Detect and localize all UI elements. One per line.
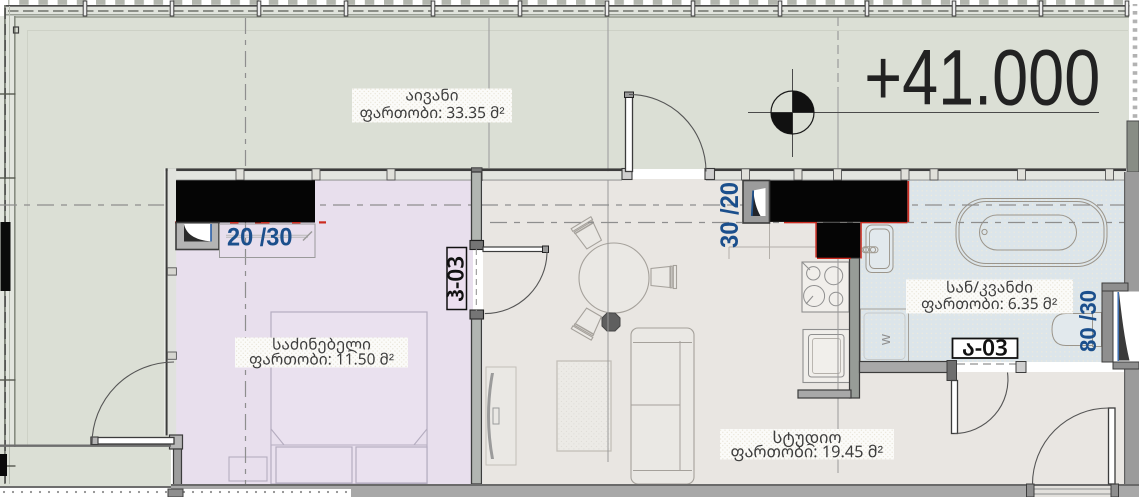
svg-text:+41.000: +41.000 [864,35,1100,122]
svg-text:w: w [877,334,894,346]
svg-text:80 /30: 80 /30 [1075,290,1101,352]
svg-text:30 /20: 30 /20 [716,182,744,248]
svg-text:20 /30: 20 /30 [227,224,293,252]
